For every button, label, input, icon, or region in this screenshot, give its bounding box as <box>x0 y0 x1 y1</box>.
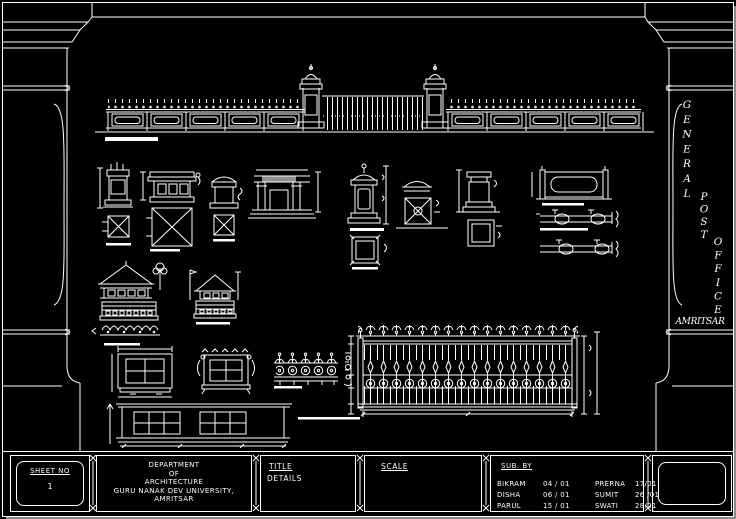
sheet-no-value: 1 <box>17 482 83 491</box>
ornate-pier-detail <box>348 164 389 270</box>
post-detail <box>456 170 502 246</box>
title-box: TITLE DETAILS <box>260 455 356 512</box>
submission-date: 06 / 01 <box>543 491 595 499</box>
sub-by-label: SUB. BY <box>501 462 532 470</box>
rail-section-detail-2 <box>540 240 618 257</box>
sheet-no-label: SHEET NO <box>17 467 83 475</box>
scale-box: SCALE <box>364 455 482 512</box>
scale-label: SCALE <box>381 462 408 471</box>
drawing-sheet: GENERAL POST OFFICE AMRITSAR SHEET NO 1 … <box>0 0 736 519</box>
submission-date: 15 / 01 <box>543 502 595 510</box>
submitter-name: SWATI <box>595 502 635 510</box>
submitter-name: BIKRAM <box>497 480 543 488</box>
pavilion-detail-1 <box>92 261 167 346</box>
department-text: DEPARTMENT OF ARCHITECTURE GURU NANAK DE… <box>97 461 251 504</box>
side-title-office: OFFICE <box>712 236 724 318</box>
empty-revision-box <box>652 455 732 512</box>
small-railing-detail <box>274 352 352 389</box>
title-label: TITLE <box>269 462 292 471</box>
cad-drawing-canvas <box>0 0 736 519</box>
wall-windows-elevation <box>107 404 292 448</box>
pavilion-detail-2 <box>190 270 241 325</box>
submitter-name: DISHA <box>497 491 543 499</box>
department-line: GURU NANAK DEV UNIVERSITY, <box>97 487 251 496</box>
empty-revision-inner-frame <box>658 462 726 505</box>
submission-list: BIKRAM 04 / 01 PRERNA 17/01 DISHA 06 / 0… <box>497 480 671 510</box>
department-line: ARCHITECTURE <box>97 478 251 487</box>
department-line: AMRITSAR <box>97 495 251 504</box>
large-fence-detail <box>298 325 600 420</box>
rail-section-detail-1 <box>536 210 618 231</box>
window-detail-2 <box>198 349 255 394</box>
sheet-no-inner-frame: SHEET NO 1 <box>16 461 84 506</box>
pier-detail-b <box>140 172 200 252</box>
sheet-no-box: SHEET NO 1 <box>10 455 90 512</box>
submission-date: 04 / 01 <box>543 480 595 488</box>
pier-detail-a <box>97 162 133 246</box>
side-title-city: AMRITSAR <box>670 317 730 327</box>
wall-panel-detail <box>532 166 612 206</box>
title-value: DETAILS <box>267 474 302 483</box>
pier-detail-c <box>210 177 242 242</box>
submitter-name: SUMIT <box>595 491 635 499</box>
window-detail-1 <box>112 346 172 397</box>
submitter-name: PRERNA <box>595 480 635 488</box>
side-title-post: POST <box>698 191 710 241</box>
department-box: DEPARTMENT OF ARCHITECTURE GURU NANAK DE… <box>96 455 252 512</box>
department-line: OF <box>97 470 251 479</box>
entrance-detail <box>248 170 321 218</box>
sub-by-box: SUB. BY BIKRAM 04 / 01 PRERNA 17/01 DISH… <box>490 455 644 512</box>
cap-plan-detail <box>396 182 448 229</box>
scale-bar <box>105 137 158 141</box>
side-title-general: GENERAL <box>681 99 693 203</box>
gate-pier-right <box>422 64 448 128</box>
boundary-wall-elevation <box>95 64 654 141</box>
submitter-name: PARUL <box>497 502 543 510</box>
department-line: DEPARTMENT <box>97 461 251 470</box>
